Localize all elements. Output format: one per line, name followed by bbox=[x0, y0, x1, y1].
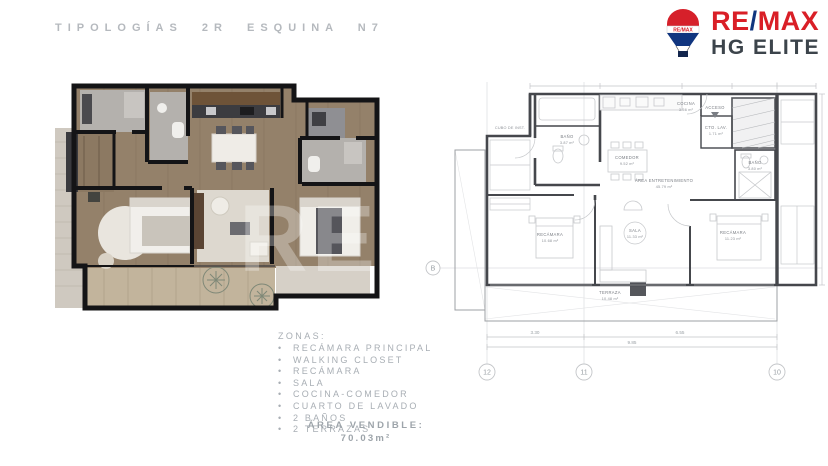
balloon-brand-text: RE/MAX bbox=[673, 28, 693, 34]
remax-balloon-icon: RE/MAX bbox=[662, 8, 704, 58]
zone-item: • RECÁMARA bbox=[278, 366, 432, 378]
tp-label-ctolav: CTO. LAV. bbox=[705, 125, 727, 130]
dining-table bbox=[212, 134, 256, 162]
remax-logo: RE/MAX RE/MAX HG ELITE bbox=[662, 8, 820, 58]
area-label: ÁREA VENDIBLE: bbox=[282, 420, 450, 431]
tp-installations-cube bbox=[732, 98, 775, 148]
tp-label-recamara2: RECÁMARA bbox=[720, 230, 746, 235]
tp-label-cocina: COCINA bbox=[677, 101, 695, 106]
tp-label-terraza: TERRAZA bbox=[599, 290, 621, 295]
tp-area-recamara1: 10.68 m² bbox=[542, 239, 559, 243]
zone-item: • WALKING CLOSET bbox=[278, 355, 432, 367]
dim-seg-left: 3.30 bbox=[531, 330, 540, 335]
tp-area-ctolav: 1.71 m² bbox=[709, 132, 724, 136]
tp-area-bano1: 3.87 m² bbox=[560, 141, 575, 145]
grid-col-10: 10 bbox=[773, 370, 781, 377]
grid-row-b: B bbox=[431, 266, 436, 273]
brand-subtitle: HG ELITE bbox=[711, 37, 820, 58]
tp-sofa bbox=[600, 201, 646, 282]
bullet-icon: • bbox=[278, 355, 293, 367]
tp-entry-arrow-icon bbox=[711, 112, 719, 118]
area-vendible: ÁREA VENDIBLE: 70.03m² bbox=[282, 420, 450, 444]
zone-item: • RECÁMARA PRINCIPAL bbox=[278, 343, 432, 355]
tp-label-areaent: ÁREA ENTRETENIMIENTO bbox=[635, 178, 694, 183]
bullet-icon: • bbox=[278, 366, 293, 378]
brand-name: RE/MAX bbox=[711, 8, 820, 35]
tp-label-bano2: BAÑO bbox=[748, 160, 762, 165]
page-title: TIPOLOGÍAS 2R ESQUINA N7 bbox=[55, 22, 384, 34]
zone-item: • SALA bbox=[278, 378, 432, 390]
grid-col-12: 12 bbox=[483, 370, 491, 377]
kitchen-upper bbox=[192, 92, 280, 105]
zone-label: RECÁMARA bbox=[293, 366, 362, 378]
bullet-icon: • bbox=[278, 378, 293, 390]
tp-area-cocina: 3.56 m² bbox=[679, 108, 694, 112]
tp-area-sala: 11.33 m² bbox=[627, 235, 644, 239]
technical-floorplan-svg: COCINA 3.56 m² ACCESO CTO. LAV. 1.71 m² … bbox=[424, 76, 828, 400]
tp-label-sala: SALA bbox=[629, 228, 641, 233]
zone-label: CUARTO DE LAVADO bbox=[293, 401, 419, 413]
tp-label-comedor: COMEDOR bbox=[615, 155, 639, 160]
bullet-icon: • bbox=[278, 389, 293, 401]
zone-item: • COCINA-COMEDOR bbox=[278, 389, 432, 401]
logo-text: RE/MAX HG ELITE bbox=[711, 8, 820, 58]
brand-re: RE bbox=[711, 6, 750, 36]
tp-area-terraza: 10.48 m² bbox=[602, 297, 619, 301]
brand-max: MAX bbox=[758, 6, 820, 36]
tp-area-recamara2: 11.23 m² bbox=[725, 237, 742, 241]
tp-area-bano2: 3.80 m² bbox=[748, 167, 763, 171]
brand-slash: / bbox=[750, 6, 758, 36]
zone-label: WALKING CLOSET bbox=[293, 355, 403, 367]
dim-total: 9.85 bbox=[628, 340, 637, 345]
tp-label-recamara1: RECÁMARA bbox=[537, 232, 563, 237]
rendered-floorplan-image: RE bbox=[44, 56, 400, 328]
grid-col-11: 11 bbox=[580, 370, 587, 377]
tp-label-bano1: BAÑO bbox=[560, 134, 574, 139]
presentation-slide: TIPOLOGÍAS 2R ESQUINA N7 RE/MAX RE/MAX H… bbox=[0, 0, 828, 466]
tp-label-cubo: CUBO DE INST. bbox=[495, 126, 525, 130]
zones-heading: ZONAS: bbox=[278, 331, 432, 341]
zone-label: COCINA-COMEDOR bbox=[293, 389, 409, 401]
tp-area-comedor: 9.52 m² bbox=[620, 162, 635, 166]
tp-area-areaent: 45.79 m² bbox=[656, 185, 673, 189]
area-value: 70.03m² bbox=[282, 433, 450, 444]
zone-label: SALA bbox=[293, 378, 325, 390]
bullet-icon: • bbox=[278, 401, 293, 413]
watermark-text: RE bbox=[239, 186, 379, 292]
tp-label-acceso: ACCESO bbox=[705, 105, 725, 110]
bullet-icon: • bbox=[278, 343, 293, 355]
dim-seg-right: 6.55 bbox=[676, 330, 685, 335]
tp-kitchen bbox=[600, 95, 682, 110]
zone-label: RECÁMARA PRINCIPAL bbox=[293, 343, 432, 355]
tp-dining bbox=[608, 142, 647, 180]
tp-bed-left bbox=[529, 216, 580, 258]
zone-item: • CUARTO DE LAVADO bbox=[278, 401, 432, 413]
